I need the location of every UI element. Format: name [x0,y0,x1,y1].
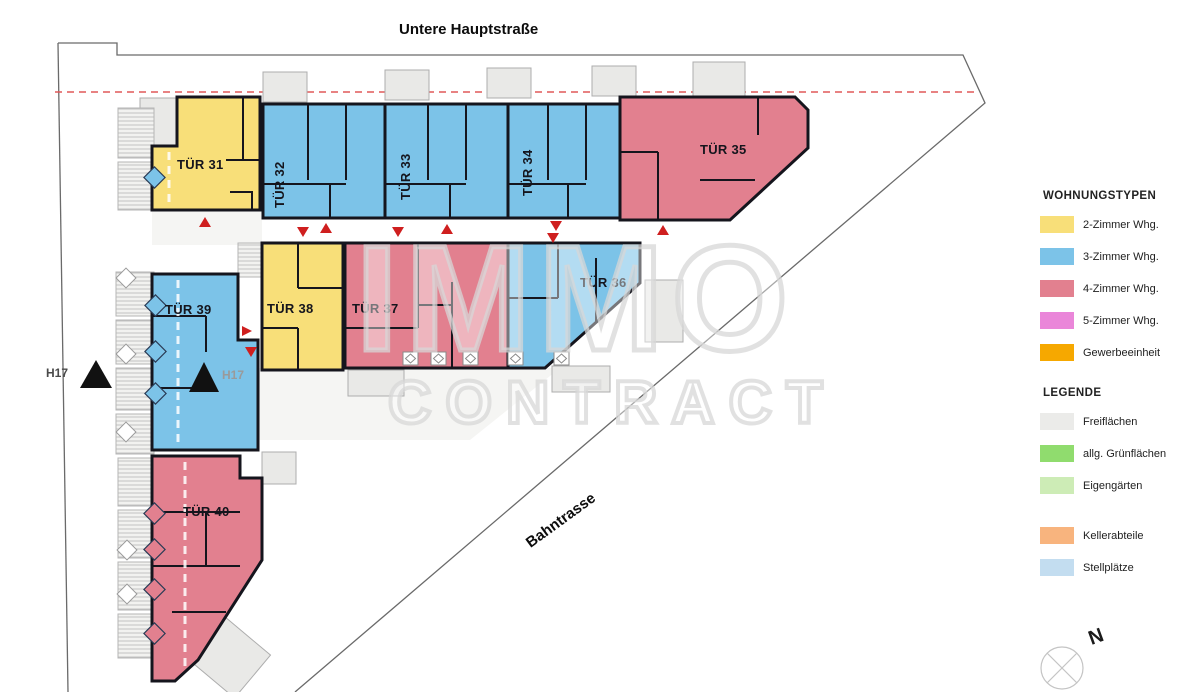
legend-row-5zimmer: 5-Zimmer Whg. [1040,312,1200,329]
legend-label-4zimmer: 4-Zimmer Whg. [1083,283,1159,295]
swatch-5zimmer [1040,312,1074,329]
legend-row-kellerabteile: Kellerabteile [1040,527,1200,544]
legend-label-eigengaerten: Eigengärten [1083,480,1142,492]
unit-label-tuer-34: TÜR 34 [520,149,535,196]
legend-label-freiflaechen: Freiflächen [1083,416,1137,428]
unit-label-tuer-35: TÜR 35 [700,142,747,157]
legend-label-5zimmer: 5-Zimmer Whg. [1083,315,1159,327]
swatch-gewerbe [1040,344,1074,361]
legend-row-2zimmer: 2-Zimmer Whg. [1040,216,1200,233]
street-label-top: Untere Hauptstraße [399,21,538,38]
floor-plan-canvas: Untere Hauptstraße Bahntrasse TÜR 31 TÜR… [0,0,1200,692]
swatch-stellplaetze [1040,559,1074,576]
legend-row-4zimmer: 4-Zimmer Whg. [1040,280,1200,297]
legend-row-3zimmer: 3-Zimmer Whg. [1040,248,1200,265]
unit-label-tuer-32: TÜR 32 [272,161,287,208]
legend-label-gewerbe: Gewerbeeinheit [1083,347,1160,359]
unit-label-tuer-38: TÜR 38 [267,301,314,316]
legend-row-eigengaerten: Eigengärten [1040,477,1200,494]
swatch-4zimmer [1040,280,1074,297]
swatch-freiflaechen [1040,413,1074,430]
unit-label-tuer-40: TÜR 40 [183,504,230,519]
legend-label-stellplaetze: Stellplätze [1083,562,1134,574]
legend-label-kellerabteile: Kellerabteile [1083,530,1144,542]
unit-tuer-36-shape [508,243,640,368]
swatch-kellerabteile [1040,527,1074,544]
site-plan-drawing [0,0,1200,692]
unit-tuer-35-shape [620,97,808,220]
compass-icon [1041,647,1083,689]
house-label-h17-left: H17 [46,366,68,380]
legend-row-gruenflaechen: allg. Grünflächen [1040,445,1200,462]
unit-label-tuer-31: TÜR 31 [177,157,224,172]
legend-label-3zimmer: 3-Zimmer Whg. [1083,251,1159,263]
legend-row-stellplaetze: Stellplätze [1040,559,1200,576]
legend-row-freiflaechen: Freiflächen [1040,413,1200,430]
legend-label-2zimmer: 2-Zimmer Whg. [1083,219,1159,231]
swatch-2zimmer [1040,216,1074,233]
legend-row-gewerbe: Gewerbeeinheit [1040,344,1200,361]
unit-label-tuer-36: TÜR 36 [580,275,627,290]
swatch-3zimmer [1040,248,1074,265]
legend-types-title: WOHNUNGSTYPEN [1043,190,1200,202]
unit-label-tuer-33: TÜR 33 [398,153,413,200]
legend-panel: WOHNUNGSTYPEN 2-Zimmer Whg. 3-Zimmer Whg… [1040,190,1200,591]
legend-areas-title: LEGENDE [1043,387,1200,399]
swatch-gruenflaechen [1040,445,1074,462]
swatch-eigengaerten [1040,477,1074,494]
unit-label-tuer-39: TÜR 39 [165,302,212,317]
legend-label-gruenflaechen: allg. Grünflächen [1083,448,1166,460]
unit-tuer-39-shape [152,274,258,450]
house-label-h17-right: H17 [222,368,244,382]
unit-label-tuer-37: TÜR 37 [352,301,399,316]
